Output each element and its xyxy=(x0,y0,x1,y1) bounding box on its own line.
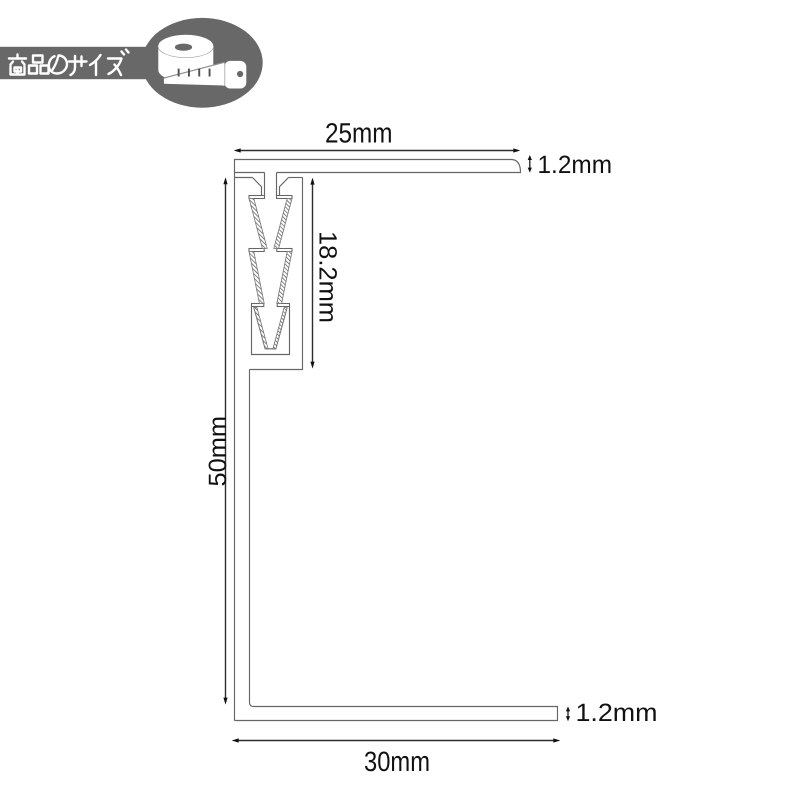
svg-text:1.2mm: 1.2mm xyxy=(538,151,613,179)
svg-text:1.2mm: 1.2mm xyxy=(576,699,658,727)
svg-text:18.2mm: 18.2mm xyxy=(314,231,342,323)
svg-text:25mm: 25mm xyxy=(325,118,393,149)
svg-text:50mm: 50mm xyxy=(204,416,232,487)
svg-text:30mm: 30mm xyxy=(364,746,430,777)
